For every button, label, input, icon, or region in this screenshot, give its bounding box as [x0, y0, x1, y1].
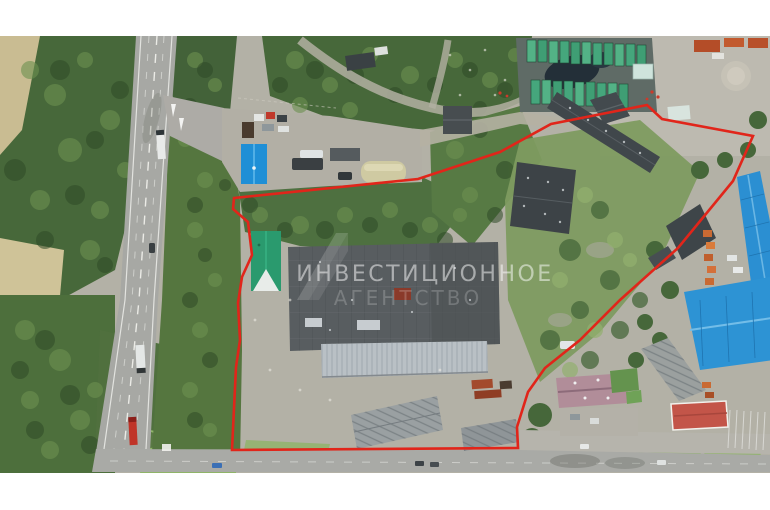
- roof-vent-1: [305, 318, 322, 327]
- truck-white-south: [135, 345, 145, 373]
- sidewalk-strip: [520, 430, 770, 454]
- brown-hut: [242, 122, 254, 138]
- car-dark-1: [415, 461, 424, 466]
- letterbox-bottom: [0, 473, 770, 510]
- aerial-photo: ИНВЕСТИЦИОННОЕ АГЕНТСТВО: [0, 0, 770, 510]
- white-van-1: [727, 255, 737, 261]
- green-roof-house: [251, 231, 281, 291]
- car-blue: [212, 463, 222, 468]
- dark-building-north: [443, 106, 472, 134]
- purple-building: [556, 368, 642, 436]
- blue-roof-house: [241, 144, 267, 184]
- salmon-building: [671, 401, 728, 430]
- warehouse-annex-roof: [321, 341, 488, 378]
- truck-red: [128, 417, 137, 445]
- road-marking-block: [162, 444, 171, 451]
- aerial-photo-frame: ИНВЕСТИЦИОННОЕ АГЕНТСТВО: [0, 0, 770, 510]
- dark-flat-building: [510, 162, 576, 234]
- green-containers: [516, 38, 657, 112]
- letterbox-top: [0, 0, 770, 36]
- green-roof-section: [610, 368, 639, 393]
- car-white: [657, 460, 666, 465]
- watermark-text-line1: ИНВЕСТИЦИОННОЕ: [296, 262, 553, 287]
- roof-vent-2: [357, 320, 380, 330]
- white-van-2: [733, 267, 743, 273]
- teal-shed: [633, 64, 653, 79]
- car-dark-2: [430, 462, 439, 467]
- white-shed-ne: [667, 105, 690, 121]
- car-dark: [149, 243, 155, 253]
- car-white-2: [580, 444, 589, 449]
- watermark-text-line2: АГЕНТСТВО: [334, 286, 482, 310]
